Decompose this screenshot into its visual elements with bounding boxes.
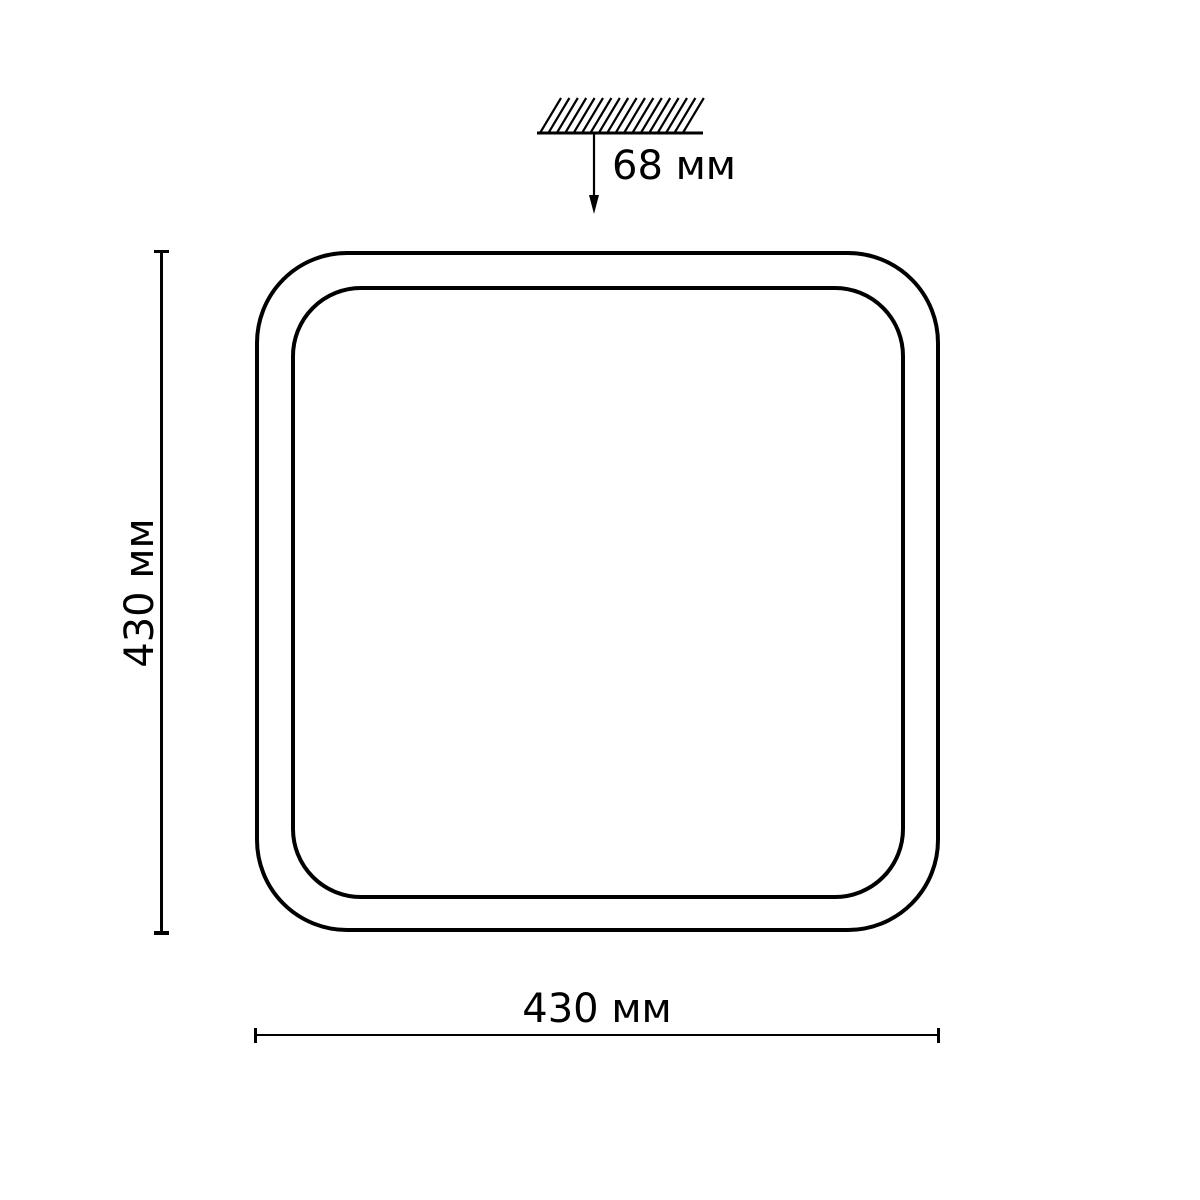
- vertical-dimension-label: 430 мм: [120, 393, 160, 793]
- horizontal-dimension-label: 430 мм: [447, 989, 747, 1029]
- horizontal-dimension-left-tick: [254, 1028, 258, 1043]
- dimension-drawing: 68 мм 430 мм 430 мм: [0, 0, 1200, 1200]
- vertical-dimension-bottom-tick: [154, 931, 169, 935]
- ceiling-hatch-icon: [537, 98, 704, 133]
- mount-height-label: 68 мм: [612, 146, 736, 186]
- horizontal-dimension-line: [255, 1034, 938, 1037]
- vertical-dimension-top-tick: [154, 250, 169, 254]
- height-arrow-icon: [589, 135, 599, 215]
- horizontal-dimension-right-tick: [937, 1028, 941, 1043]
- fixture-inner-panel: [291, 286, 905, 899]
